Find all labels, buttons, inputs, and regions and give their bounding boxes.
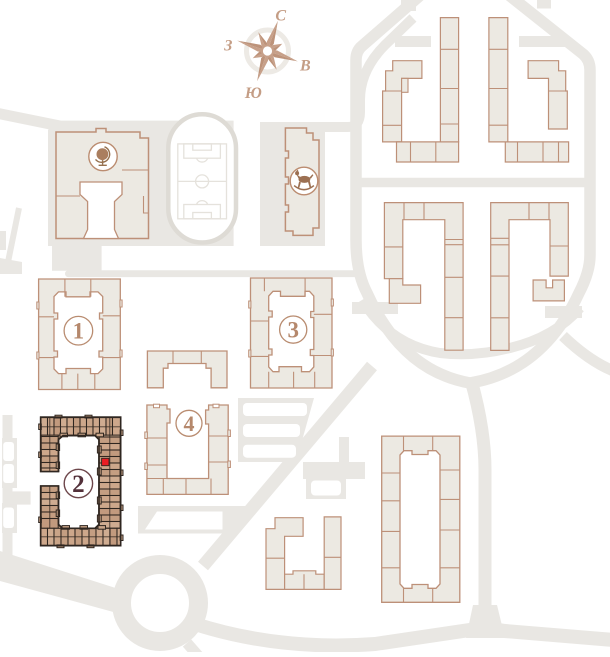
svg-text:С: С bbox=[275, 8, 286, 25]
svg-text:Ю: Ю bbox=[244, 85, 262, 102]
svg-text:З: З bbox=[223, 38, 232, 55]
svg-text:3: 3 bbox=[287, 317, 299, 342]
svg-text:1: 1 bbox=[73, 319, 85, 344]
svg-text:2: 2 bbox=[72, 471, 85, 498]
svg-text:В: В bbox=[299, 57, 311, 74]
svg-text:4: 4 bbox=[184, 411, 195, 436]
